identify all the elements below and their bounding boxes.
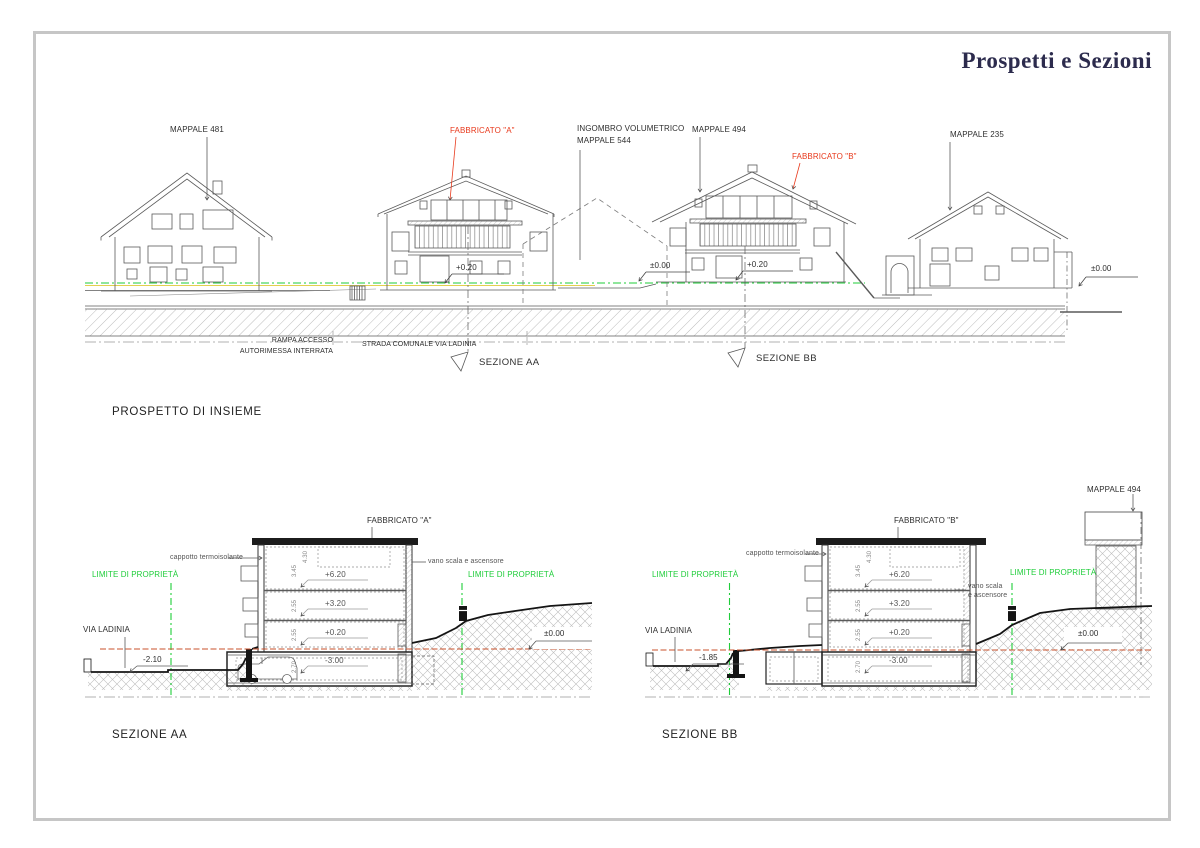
bb-label-cappotto: cappotto termoisolante xyxy=(746,549,819,558)
label-mappale-235: MAPPALE 235 xyxy=(950,130,1004,140)
bb-dim-4: 2.70 xyxy=(856,661,862,673)
building-section-b xyxy=(766,538,986,686)
label-mappale-494: MAPPALE 494 xyxy=(692,125,746,135)
bb-limite-proprieta-dx: LIMITE DI PROPRIETÀ xyxy=(1010,568,1096,578)
aa-dim-2: 2.55 xyxy=(292,600,298,612)
bb-level-strada: -1.85 xyxy=(699,653,718,663)
aa-dim-3: 2.55 xyxy=(292,629,298,641)
bb-level-pt: +0.20 xyxy=(889,628,910,638)
aa-dim-0: 4.30 xyxy=(303,551,309,563)
label-sezione-bb-cut: SEZIONE BB xyxy=(756,354,817,364)
label-fabbricato-a: FABBRICATO "A" xyxy=(450,126,515,136)
label-rampa-line2: AUTORIMESSA INTERRATA xyxy=(215,347,333,356)
boundary-stone-a xyxy=(459,606,467,621)
level-plus020-a: +0.20 xyxy=(456,263,477,273)
street-bollard-a xyxy=(84,659,91,672)
bb-label-vano-line2: e ascensore xyxy=(968,591,1007,600)
aa-level-p1: +3.20 xyxy=(325,599,346,609)
label-ingombro-line2: MAPPALE 544 xyxy=(577,136,631,146)
label-strada-comunale: STRADA COMUNALE VIA LADINIA xyxy=(362,340,476,349)
bb-level-p2: +6.20 xyxy=(889,570,910,580)
title-sezione-bb: SEZIONE BB xyxy=(662,730,738,740)
bb-level-interrato: -3.00 xyxy=(889,656,908,666)
street-bollard-b xyxy=(646,653,653,666)
bb-dim-1: 3.45 xyxy=(856,565,862,577)
label-mappale-481: MAPPALE 481 xyxy=(170,125,224,135)
level-plus020-b: +0.20 xyxy=(747,260,768,270)
bb-level-zero: ±0.00 xyxy=(1078,629,1098,639)
bb-dim-2: 2.55 xyxy=(856,600,862,612)
aa-level-interrato: -3.00 xyxy=(325,656,344,666)
aa-label-via-ladinia: VIA LADINIA xyxy=(83,625,130,635)
aa-dim-4: 2.70 xyxy=(292,661,298,673)
aa-dim-1: 3.45 xyxy=(292,565,298,577)
bb-dim-0: 4.30 xyxy=(867,551,873,563)
label-rampa-line1: RAMPA ACCESSO xyxy=(215,336,333,345)
level-zero-right: ±0.00 xyxy=(1091,264,1111,274)
bb-label-mappale-494: MAPPALE 494 xyxy=(1087,485,1141,495)
drawing-sheet: Prospetti e Sezioni MAPPALE 481 FABBRICA… xyxy=(0,0,1200,848)
bb-level-p1: +3.20 xyxy=(889,599,910,609)
bb-dim-3: 2.55 xyxy=(856,629,862,641)
aa-level-zero: ±0.00 xyxy=(544,629,564,639)
house-mappale-481 xyxy=(101,173,272,291)
aa-level-strada: -2.10 xyxy=(143,655,162,665)
prospetto-level-flags xyxy=(445,271,1138,286)
boundary-stone-b xyxy=(1008,606,1016,621)
aa-limite-proprieta-sx: LIMITE DI PROPRIETÀ xyxy=(92,570,178,580)
aa-label-fabbricato: FABBRICATO "A" xyxy=(367,516,432,526)
aa-label-vano-scala: vano scala e ascensore xyxy=(428,557,504,566)
aa-level-pt: +0.20 xyxy=(325,628,346,638)
aa-limite-proprieta-dx: LIMITE DI PROPRIETÀ xyxy=(468,570,554,580)
label-sezione-aa-cut: SEZIONE AA xyxy=(479,358,540,368)
title-prospetto-di-insieme: PROSPETTO DI INSIEME xyxy=(112,407,262,417)
retaining-walls xyxy=(836,252,932,298)
aa-level-p2: +6.20 xyxy=(325,570,346,580)
bb-limite-proprieta-sx: LIMITE DI PROPRIETÀ xyxy=(652,570,738,580)
bb-label-via-ladinia: VIA LADINIA xyxy=(645,626,692,636)
section-cut-bb-mark xyxy=(728,246,745,367)
sheet-title: Prospetti e Sezioni xyxy=(940,48,1152,74)
bb-label-vano-line1: vano scala xyxy=(968,582,1002,591)
external-stairs xyxy=(350,286,365,300)
label-fabbricato-b: FABBRICATO "B" xyxy=(792,152,857,162)
sezione-aa-drawing xyxy=(84,527,594,697)
label-ingombro-line1: INGOMBRO VOLUMETRICO xyxy=(577,124,684,134)
level-zero-mid: ±0.00 xyxy=(650,261,670,271)
aa-label-cappotto: cappotto termoisolante xyxy=(170,553,243,562)
title-sezione-aa: SEZIONE AA xyxy=(112,730,187,740)
terrain-hatch-left-b xyxy=(650,653,739,690)
bb-label-fabbricato: FABBRICATO "B" xyxy=(894,516,959,526)
